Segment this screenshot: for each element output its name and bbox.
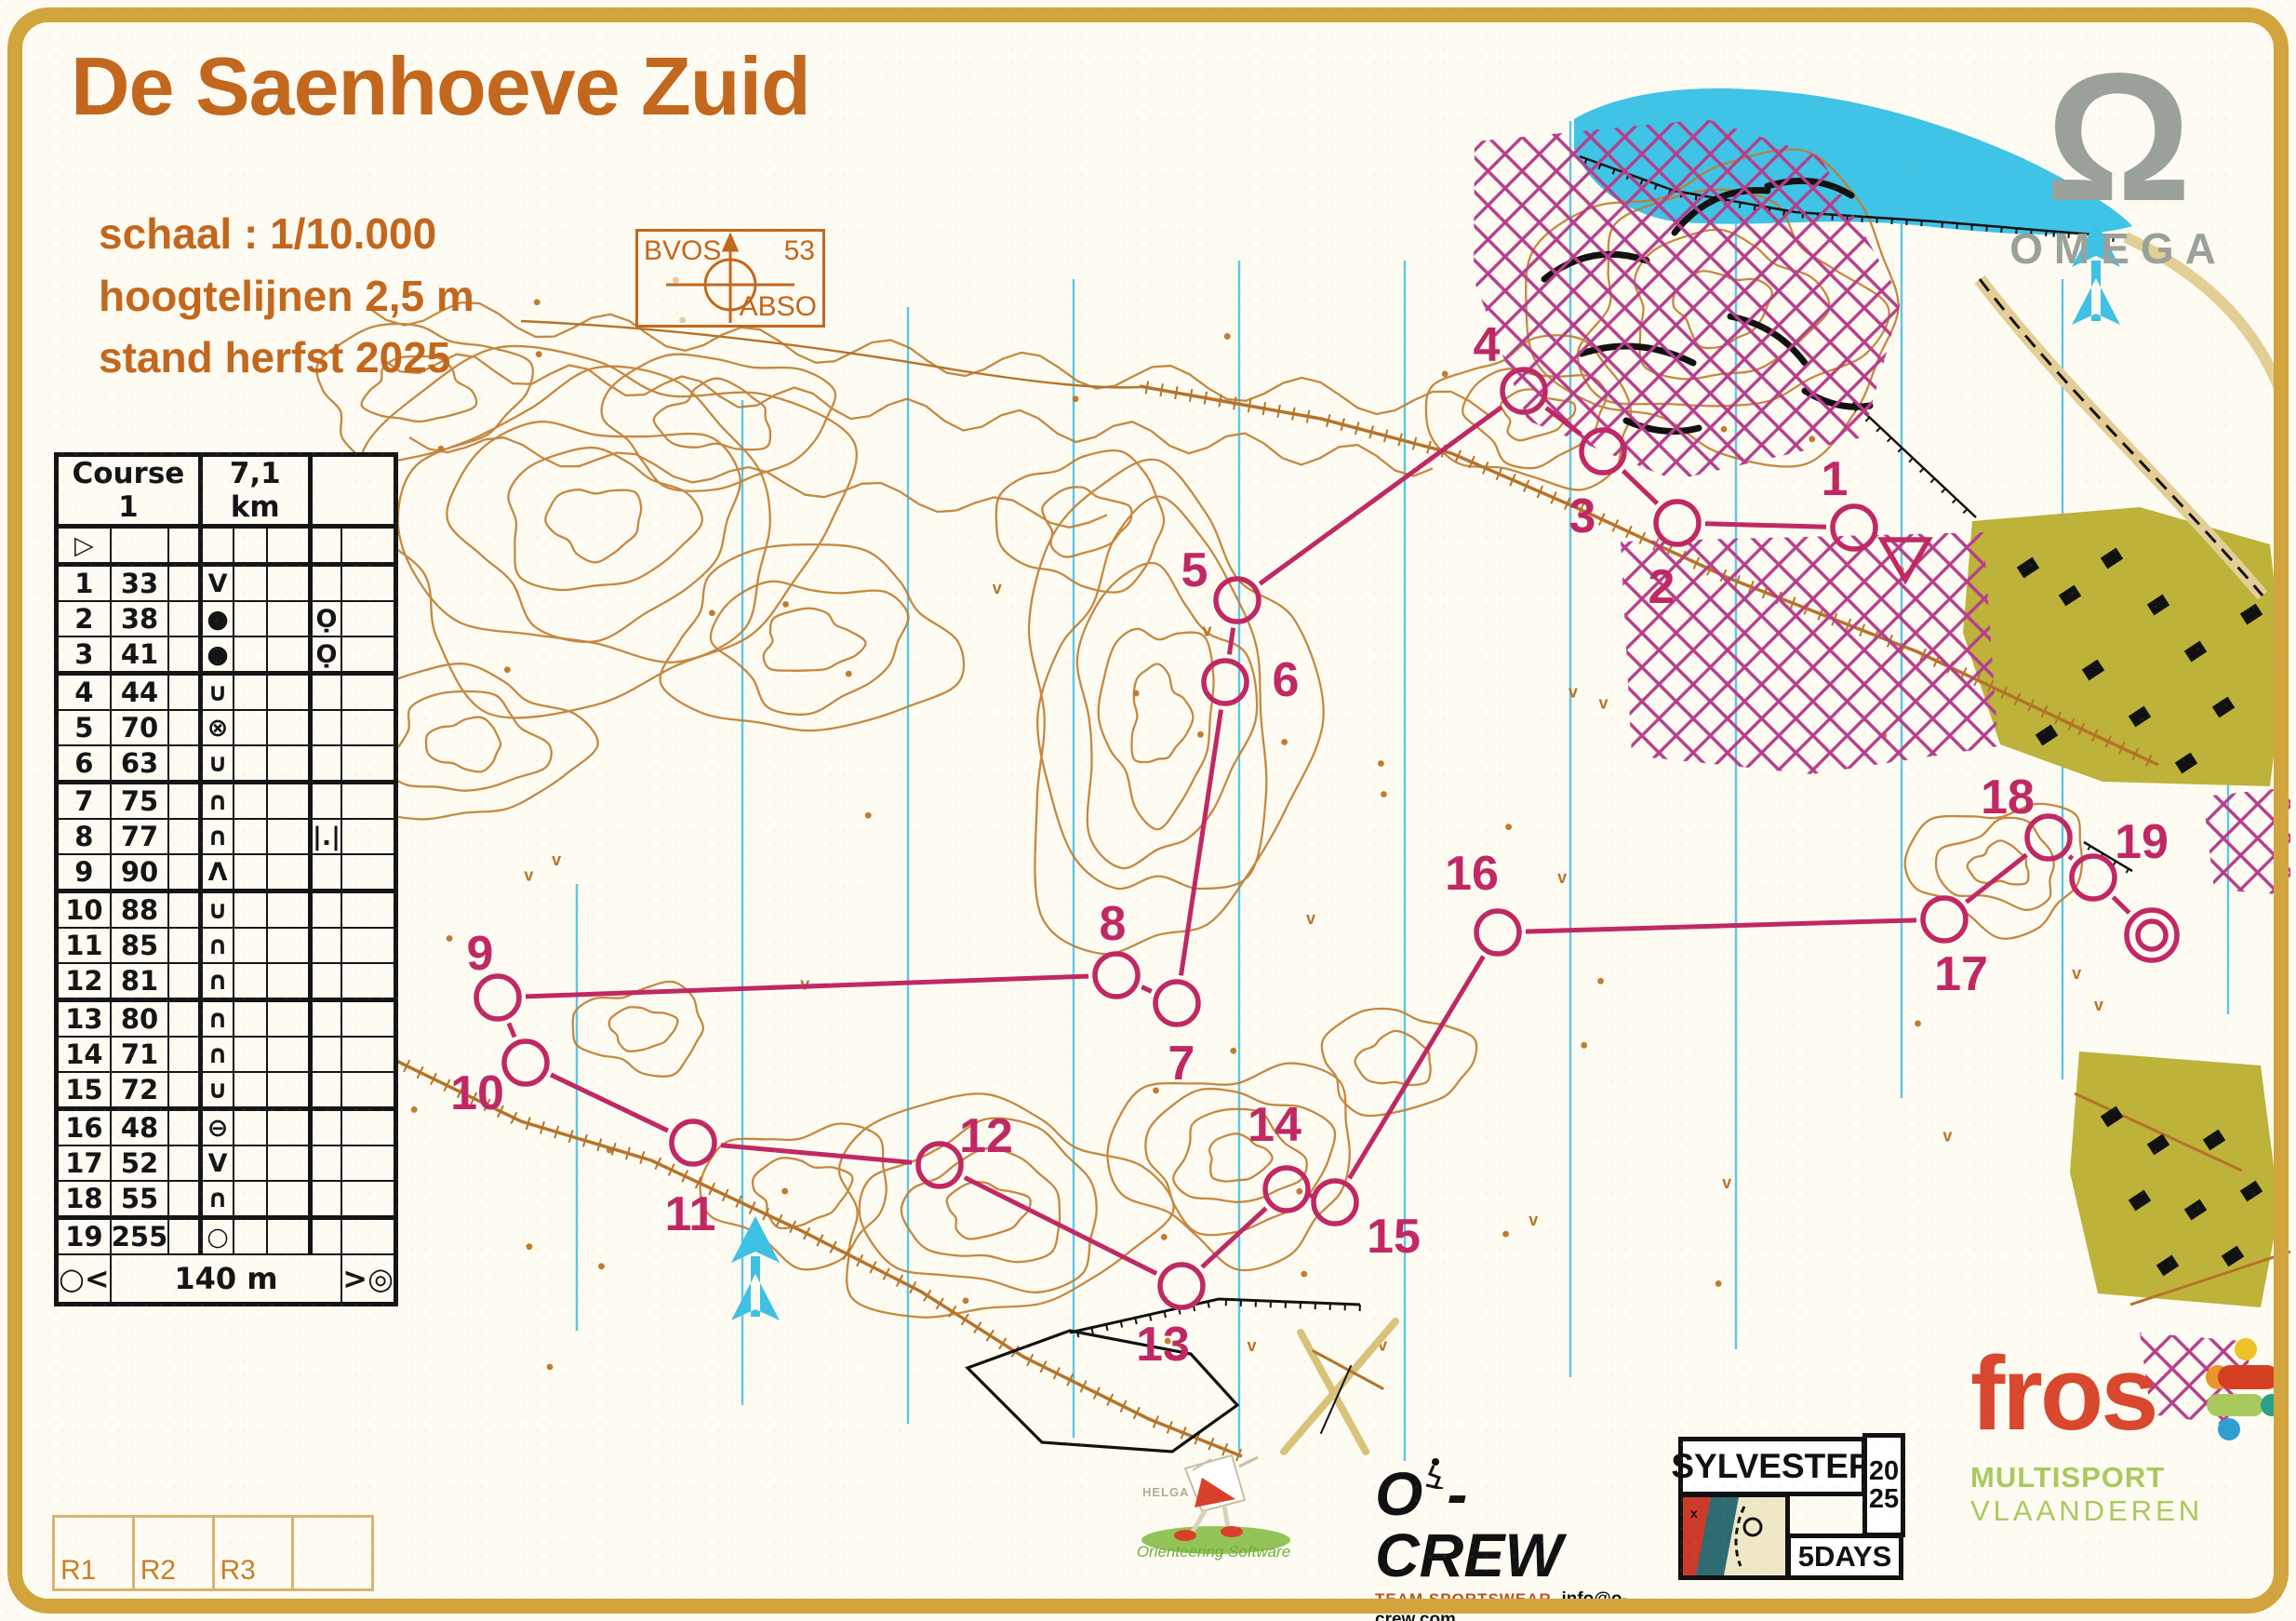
control-number: 3 (1569, 489, 1596, 543)
leg-line (1202, 1208, 1266, 1266)
scale-text: schaal : 1/10.000 (99, 203, 474, 265)
control-number: 19 (2115, 815, 2169, 869)
leg-line (1141, 987, 1152, 992)
fros-multisport: MULTISPORT (1970, 1461, 2287, 1494)
control-row: 570⊗ (57, 710, 396, 745)
control-number: 2 (1649, 560, 1675, 614)
control-circle (2072, 856, 2115, 899)
course-name: Course 1 (57, 455, 201, 527)
finish-distance: 140 m (111, 1254, 342, 1305)
omega-logo: Ω OMEGA (1993, 47, 2244, 274)
svg-text:v: v (993, 579, 1002, 597)
control-row: 1380∩ (57, 1000, 396, 1038)
club-code: BVOS (644, 235, 721, 267)
map-id-box: BVOS 53 ABSO (635, 229, 825, 328)
control-row: 1088∪ (57, 891, 396, 929)
svg-text:v: v (552, 851, 561, 869)
control-number: 7 (1168, 1037, 1195, 1091)
control-circle (1476, 911, 1519, 954)
sylvester-5days-logo: x SYLVESTER 20 25 5DAYS (1678, 1433, 1903, 1580)
finish-inner-circle (2138, 921, 2166, 949)
control-circle (504, 1041, 547, 1084)
leg-line (1623, 471, 1658, 503)
leg-line (965, 1177, 1156, 1273)
svg-text:v: v (2072, 964, 2081, 983)
svg-text:v: v (1202, 621, 1211, 639)
control-row: 19255○ (57, 1218, 396, 1255)
omega-label: OMEGA (1993, 223, 2244, 274)
north-arrow-icon (731, 221, 2120, 1320)
control-circle (1314, 1181, 1356, 1224)
control-row: 1185∩ (57, 928, 396, 963)
leg-line (1526, 920, 1916, 931)
svg-text:v: v (524, 866, 533, 885)
svg-text:v: v (1598, 694, 1608, 713)
map-sheet: vvvvvvvvvvvvvvvv (0, 0, 2296, 1621)
leg-line (1181, 710, 1221, 976)
map-number: 53 (784, 235, 815, 267)
control-number: 16 (1445, 847, 1499, 901)
control-circle (476, 976, 519, 1019)
control-number: 11 (665, 1187, 716, 1241)
control-circle (1160, 1265, 1203, 1307)
helga-caption: Orienteering Software (1128, 1543, 1300, 1561)
svg-text:v: v (800, 974, 809, 993)
ocrew-logo: O-CREW TEAM SPORTSWEAR info@o-crew.com (1375, 1457, 1654, 1621)
control-row: 1855∩ (57, 1181, 396, 1218)
helga-name: HELGA (1142, 1485, 1190, 1499)
control-row: 238●Ọ (57, 601, 396, 636)
control-descriptions: Course 1 7,1 km ▷ 133V238●Ọ341●Ọ444∪570⊗… (54, 452, 398, 1306)
leg-line (1705, 524, 1826, 527)
leg-line (2069, 856, 2072, 859)
control-circle (672, 1121, 714, 1164)
svg-text:v: v (1722, 1173, 1731, 1192)
control-row: 877∩|.| (57, 819, 396, 854)
control-circle (1095, 954, 1138, 997)
contour-interval-text: hoogtelijnen 2,5 m (99, 265, 474, 328)
ocrew-sportswear: TEAM SPORTSWEAR (1375, 1590, 1552, 1608)
course-overlay: 12345678910111213141516171819 (450, 318, 2177, 1372)
finish-symbol: >◎ (341, 1254, 395, 1305)
skater-icon (1422, 1457, 1447, 1489)
control-row: 133V (57, 565, 396, 602)
survey-date-text: stand herfst 2025 (99, 327, 474, 389)
control-number: 17 (1934, 947, 1988, 1001)
control-number: 5 (1181, 543, 1208, 597)
omega-icon: Ω (1993, 47, 2244, 229)
control-row: 663∪ (57, 745, 396, 783)
svg-text:v: v (1306, 909, 1315, 928)
control-number: 9 (467, 927, 494, 981)
leg-line (1229, 628, 1233, 655)
control-description-table: Course 1 7,1 km ▷ 133V238●Ọ341●Ọ444∪570⊗… (54, 452, 398, 1306)
course-length: 7,1 km (200, 455, 310, 527)
finish-route-symbol: ○< (57, 1254, 111, 1305)
sylvester-map-icon: x (1678, 1493, 1790, 1580)
fros-logo: fros MULTISPORT VLAANDEREN (1970, 1342, 2287, 1528)
control-number: 6 (1273, 653, 1300, 707)
control-number: 4 (1474, 318, 1501, 372)
ocrew-o: O (1375, 1459, 1422, 1528)
leg-line (2113, 897, 2129, 913)
sylvester-year: 20 25 (1862, 1433, 1905, 1537)
page-title: De Saenhoeve Zuid (71, 39, 810, 134)
control-number: 1 (1822, 452, 1849, 506)
sylvester-title: SYLVESTER (1678, 1437, 1866, 1496)
fros-vlaanderen: VLAANDEREN (1970, 1494, 2287, 1528)
leg-line (509, 1024, 514, 1038)
control-circle (1656, 502, 1699, 544)
reserve-r2: R2 (140, 1555, 176, 1587)
control-row: 775∩ (57, 783, 396, 820)
control-row: 1752V (57, 1145, 396, 1181)
reserve-box: R1 R2 R3 (52, 1515, 374, 1591)
control-circle (1155, 982, 1198, 1025)
finish-row: ○< 140 m >◎ (57, 1254, 396, 1305)
svg-text:v: v (1568, 682, 1578, 701)
control-number: 10 (450, 1066, 504, 1120)
control-row: 1648⊖ (57, 1109, 396, 1146)
start-row: ▷ (57, 527, 396, 565)
svg-text:x: x (1690, 1506, 1698, 1521)
leg-line (551, 1075, 668, 1131)
control-row: 990Λ (57, 854, 396, 891)
control-number: 15 (1367, 1210, 1421, 1264)
control-row: 444∪ (57, 674, 396, 711)
control-row: 341●Ọ (57, 636, 396, 674)
svg-text:v: v (1557, 868, 1567, 887)
svg-text:v: v (1942, 1126, 1952, 1145)
control-number: 14 (1248, 1098, 1302, 1152)
svg-text:v: v (1528, 1211, 1538, 1229)
leg-line (1350, 957, 1484, 1179)
finish-outer-circle (2127, 910, 2177, 960)
control-row: 1572∪ (57, 1072, 396, 1109)
reserve-r1: R1 (60, 1555, 96, 1587)
control-number: 8 (1100, 897, 1127, 951)
svg-text:v: v (1247, 1336, 1256, 1355)
control-number: 12 (959, 1109, 1013, 1163)
svg-text:v: v (2094, 996, 2103, 1014)
control-number: 13 (1136, 1318, 1190, 1372)
control-number: 18 (1981, 770, 2035, 824)
region-code: ABSO (740, 291, 817, 323)
control-row: 1281∩ (57, 963, 396, 1000)
map-subtitle: schaal : 1/10.000 hoogtelijnen 2,5 m sta… (99, 203, 474, 389)
control-row: 1471∩ (57, 1037, 396, 1072)
reserve-r3: R3 (220, 1555, 256, 1587)
sylvester-5days: 5DAYS (1786, 1534, 1903, 1580)
sketch-doodle (1284, 1321, 1395, 1452)
start-triangle-symbol: ▷ (57, 527, 111, 565)
fros-icon (2186, 1336, 2289, 1440)
control-circle (1923, 898, 1966, 941)
helga-software-logo: HELGA Orienteering Software (1128, 1448, 1300, 1561)
